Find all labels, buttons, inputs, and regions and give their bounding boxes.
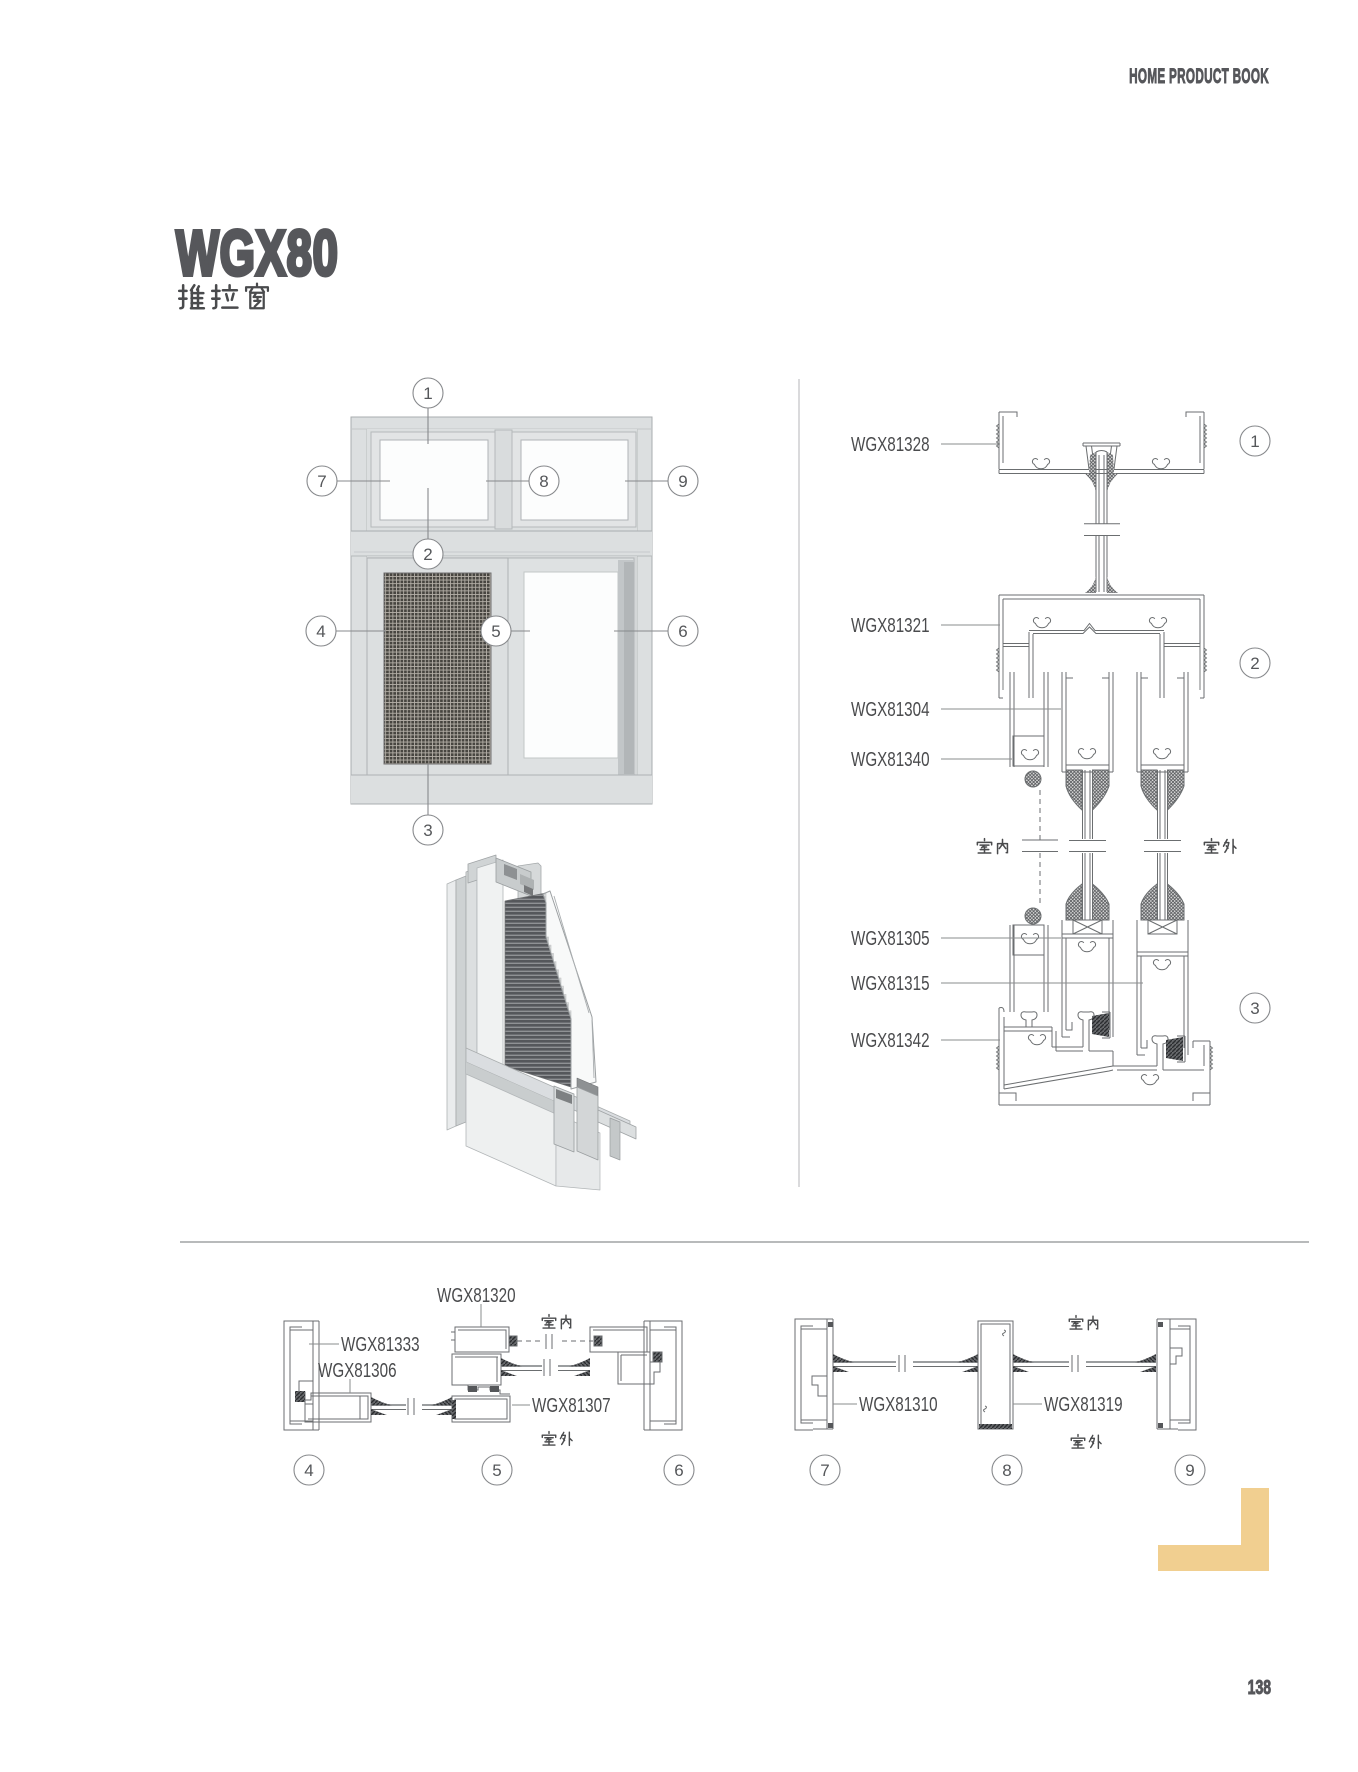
svg-text:1: 1: [1250, 432, 1259, 451]
svg-text:9: 9: [1185, 1461, 1194, 1480]
svg-text:2: 2: [423, 545, 432, 564]
svg-text:WGX81310: WGX81310: [859, 1393, 938, 1416]
svg-text:4: 4: [316, 622, 325, 641]
svg-text:WGX81340: WGX81340: [851, 748, 930, 771]
svg-text:4: 4: [304, 1461, 313, 1480]
svg-text:WGX81333: WGX81333: [341, 1333, 420, 1356]
svg-text:WGX81342: WGX81342: [851, 1029, 930, 1052]
svg-text:WGX81315: WGX81315: [851, 972, 930, 995]
svg-text:WGX81321: WGX81321: [851, 614, 930, 637]
svg-text:HOME PRODUCT BOOK: HOME PRODUCT BOOK: [1129, 64, 1269, 87]
svg-text:WGX81306: WGX81306: [318, 1359, 397, 1382]
svg-text:WGX81307: WGX81307: [532, 1394, 611, 1417]
svg-text:9: 9: [678, 472, 687, 491]
svg-text:WGX81328: WGX81328: [851, 433, 930, 456]
svg-text:6: 6: [678, 622, 687, 641]
svg-text:2: 2: [1250, 654, 1259, 673]
svg-text:7: 7: [317, 472, 326, 491]
svg-text:WGX81305: WGX81305: [851, 927, 930, 950]
svg-text:WGX81319: WGX81319: [1044, 1393, 1123, 1416]
svg-text:WGX80: WGX80: [176, 217, 339, 288]
svg-text:8: 8: [539, 472, 548, 491]
svg-text:7: 7: [820, 1461, 829, 1480]
svg-text:138: 138: [1248, 1675, 1272, 1698]
svg-text:WGX81320: WGX81320: [437, 1284, 516, 1307]
svg-text:3: 3: [423, 821, 432, 840]
svg-text:1: 1: [423, 384, 432, 403]
svg-text:5: 5: [491, 622, 500, 641]
svg-text:8: 8: [1002, 1461, 1011, 1480]
svg-text:3: 3: [1250, 999, 1259, 1018]
svg-text:6: 6: [674, 1461, 683, 1480]
svg-text:WGX81304: WGX81304: [851, 698, 930, 721]
svg-text:5: 5: [492, 1461, 501, 1480]
